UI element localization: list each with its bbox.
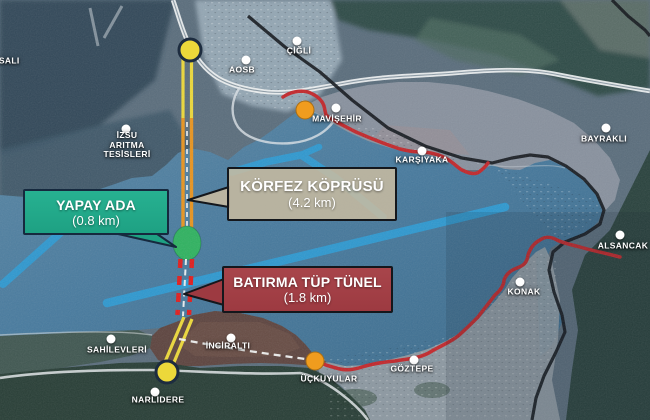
route-endpoint-north-portal	[178, 38, 203, 63]
place-label-goztepe: GÖZTEPE	[390, 364, 433, 374]
place-label-aosb: AOSB	[229, 65, 255, 75]
callout-yapay-ada: YAPAY ADA (0.8 km)	[23, 189, 169, 235]
place-label-karsiyaka: KARŞIYAKA	[396, 155, 449, 165]
place-dot-bayrakli	[602, 124, 611, 133]
place-label-cigli: ÇİĞLİ	[287, 46, 311, 56]
place-label-uckuyular: ÜÇKUYULAR	[301, 374, 358, 384]
place-label-sasali: SASALI	[0, 56, 20, 66]
orange-marker-mavisehir-junction	[296, 101, 315, 120]
place-label-sahilevleri: SAHİLEVLERİ	[87, 345, 147, 355]
place-label-konak: KONAK	[508, 287, 541, 297]
orange-marker-uckuyular-junction	[306, 352, 325, 371]
callout-korfez-koprusu-title: KÖRFEZ KÖPRÜSÜ	[240, 179, 384, 195]
place-dot-cigli	[293, 37, 302, 46]
callout-korfez-koprusu: KÖRFEZ KÖPRÜSÜ (4.2 km)	[227, 167, 397, 221]
place-label-narlidere: NARLIDERE	[132, 395, 185, 405]
place-label-alsancak: ALSANCAK	[598, 241, 649, 251]
place-label-bayrakli: BAYRAKLI	[581, 134, 627, 144]
callout-yapay-ada-length: (0.8 km)	[72, 213, 120, 228]
callout-yapay-ada-title: YAPAY ADA	[56, 197, 136, 213]
place-label-inciralti: İNCİRALTI	[206, 341, 251, 351]
place-dot-sahilevleri	[107, 335, 116, 344]
route-endpoint-south-portal	[155, 360, 180, 385]
place-dot-konak	[516, 278, 525, 287]
izmir-bay-crossing-map: SASALIÇİĞLİAOSBİZSUARITMATESİSLERİMAVİŞE…	[0, 0, 650, 420]
callout-batirma-tup-tunel: BATIRMA TÜP TÜNEL (1.8 km)	[222, 266, 393, 313]
place-label-mavisehir: MAVİŞEHİR	[312, 114, 362, 124]
callout-korfez-koprusu-length: (4.2 km)	[288, 195, 336, 210]
place-dot-mavisehir	[332, 104, 341, 113]
place-label-izsu: İZSUARITMATESİSLERİ	[103, 131, 150, 160]
callout-batirma-tup-tunel-length: (1.8 km)	[284, 290, 332, 305]
place-dot-aosb	[242, 56, 251, 65]
place-dot-alsancak	[616, 231, 625, 240]
callout-batirma-tup-tunel-title: BATIRMA TÜP TÜNEL	[233, 274, 382, 290]
